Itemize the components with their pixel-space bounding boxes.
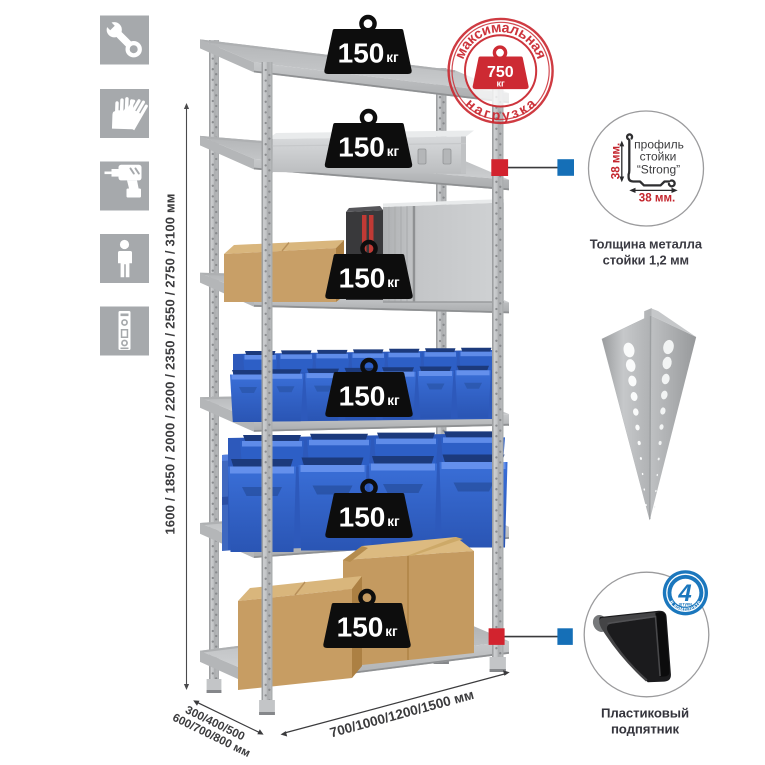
svg-text:кг: кг (496, 79, 505, 89)
svg-text:150: 150 (338, 132, 385, 163)
svg-text:Пластиковый: Пластиковый (601, 706, 689, 721)
svg-text:кг: кг (386, 50, 399, 65)
svg-text:кг: кг (387, 393, 400, 408)
svg-text:стойки: стойки (640, 150, 677, 164)
svg-text:150: 150 (339, 502, 386, 533)
svg-text:38 мм.: 38 мм. (610, 143, 623, 180)
svg-text:штуки: штуки (679, 602, 693, 607)
svg-text:150: 150 (339, 263, 386, 294)
svg-text:1600 / 1850 / 2000 / 2200 / 23: 1600 / 1850 / 2000 / 2200 / 2350 / 2550 … (163, 193, 178, 534)
svg-text:кг: кг (387, 514, 400, 529)
svg-text:150: 150 (339, 381, 386, 412)
svg-text:стойки 1,2 мм: стойки 1,2 мм (603, 253, 689, 268)
svg-text:кг: кг (385, 624, 398, 639)
svg-text:38 мм.: 38 мм. (639, 192, 676, 205)
svg-text:700/1000/1200/1500 мм: 700/1000/1200/1500 мм (328, 687, 475, 740)
svg-text:кг: кг (387, 275, 400, 290)
svg-text:“Strong”: “Strong” (637, 163, 680, 177)
svg-text:150: 150 (337, 612, 384, 643)
svg-text:кг: кг (387, 144, 400, 159)
svg-text:Толщина металла: Толщина металла (590, 237, 703, 252)
svg-text:подпятник: подпятник (611, 722, 680, 737)
svg-text:150: 150 (338, 38, 385, 69)
